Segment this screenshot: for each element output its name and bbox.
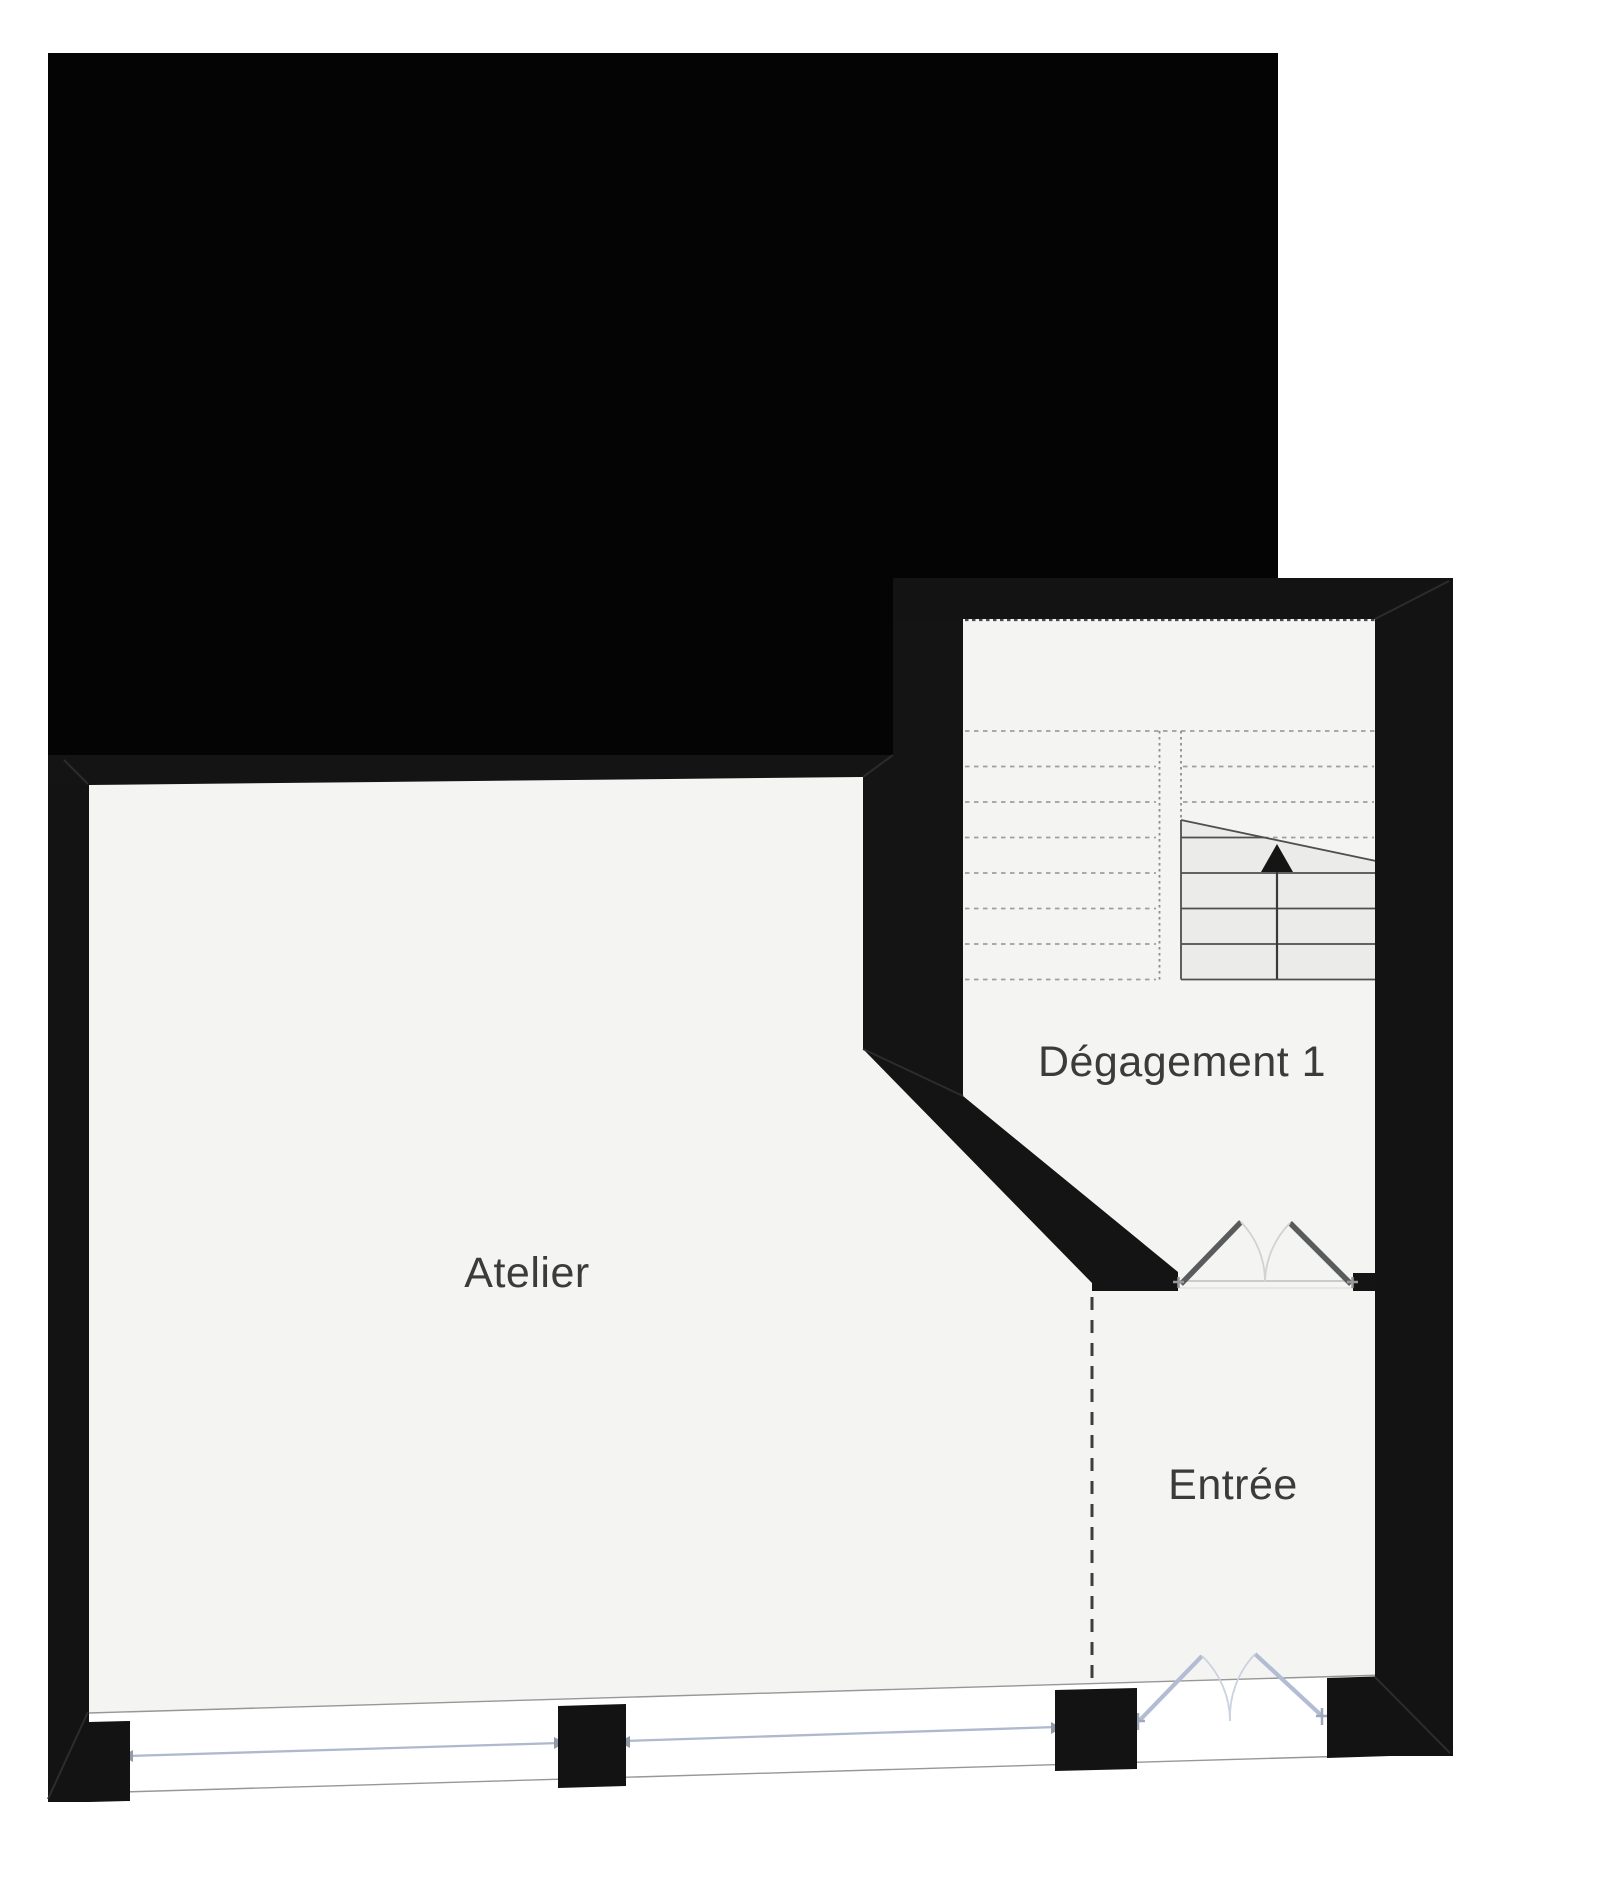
svg-text:Dégagement 1: Dégagement 1 — [1038, 1038, 1326, 1086]
svg-text:Entrée: Entrée — [1168, 1461, 1298, 1509]
svg-text:Atelier: Atelier — [464, 1249, 589, 1297]
